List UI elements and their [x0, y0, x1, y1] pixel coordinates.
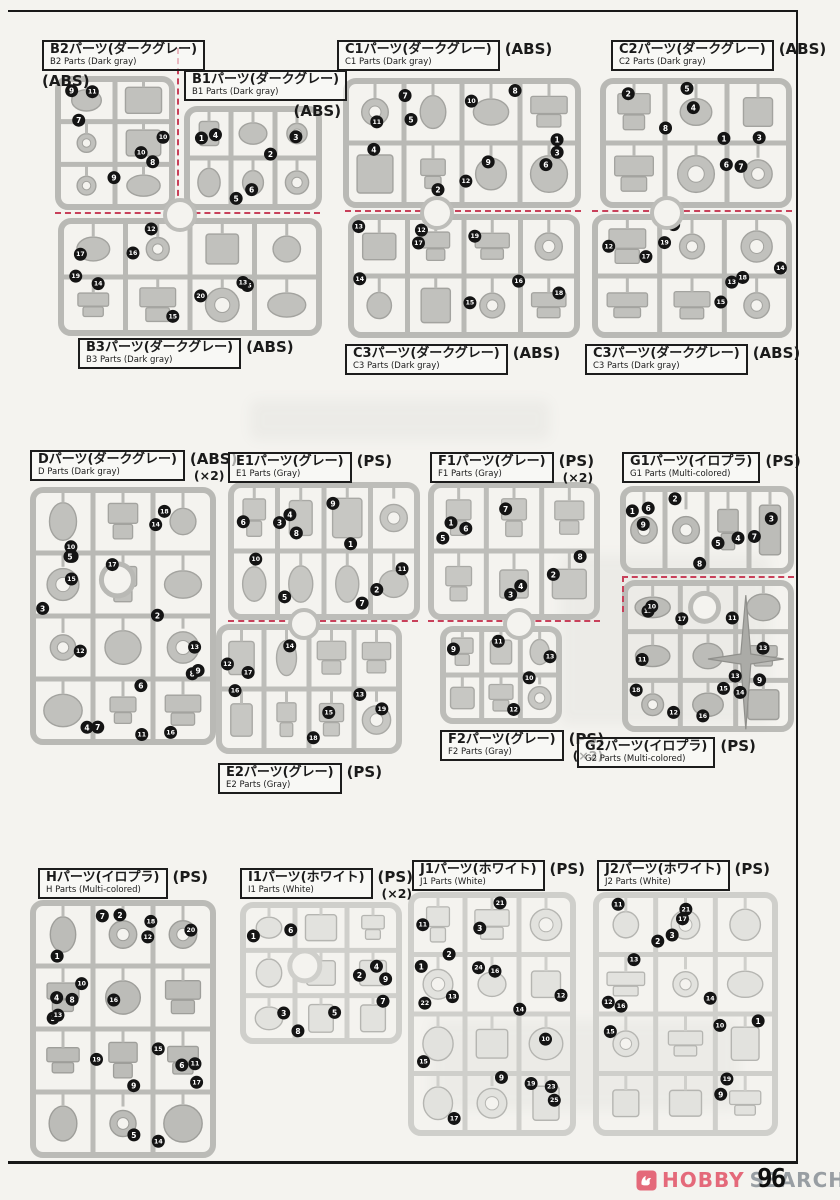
- svg-text:8: 8: [578, 552, 583, 561]
- svg-text:4: 4: [691, 104, 696, 113]
- material-tag: (ABS): [505, 40, 553, 57]
- runner-title-jp: B3パーツ(ダークグレー): [86, 341, 233, 355]
- svg-text:7: 7: [738, 162, 743, 171]
- svg-text:6: 6: [463, 524, 468, 533]
- section-label-e1: E1パーツ(グレー) E1 Parts (Gray) (PS): [228, 452, 392, 483]
- svg-text:4: 4: [518, 582, 523, 591]
- runner-title-en: F2 Parts (Gray): [448, 748, 556, 757]
- runner-title-jp: G2パーツ(イロプラ): [585, 740, 707, 754]
- runner-label-box: F2パーツ(グレー) F2 Parts (Gray): [440, 730, 564, 761]
- svg-text:25: 25: [550, 1097, 559, 1104]
- svg-text:13: 13: [448, 994, 457, 1001]
- page-border-top: [8, 10, 798, 12]
- svg-text:17: 17: [244, 669, 253, 676]
- svg-text:13: 13: [546, 654, 555, 661]
- section-label-j1: J1パーツ(ホワイト) J1 Parts (White) (PS): [412, 860, 585, 891]
- svg-text:13: 13: [239, 280, 248, 287]
- svg-text:17: 17: [642, 254, 651, 261]
- svg-text:7: 7: [503, 505, 508, 514]
- svg-text:10: 10: [467, 98, 476, 105]
- svg-text:9: 9: [718, 1090, 723, 1099]
- svg-text:24: 24: [474, 965, 483, 972]
- svg-text:10: 10: [525, 675, 534, 682]
- section-label-c2: C2パーツ(ダークグレー) C2 Parts (Dark gray) (ABS): [611, 40, 826, 71]
- svg-text:2: 2: [626, 90, 631, 99]
- runner-title-jp: F2パーツ(グレー): [448, 733, 556, 747]
- runner-junction-ring: [420, 196, 454, 230]
- svg-text:13: 13: [759, 645, 768, 652]
- svg-text:2: 2: [374, 586, 379, 595]
- page-border-bottom: [8, 1161, 798, 1164]
- svg-text:6: 6: [249, 186, 254, 195]
- svg-text:16: 16: [699, 713, 708, 720]
- svg-text:12: 12: [509, 706, 518, 713]
- svg-text:18: 18: [160, 508, 169, 515]
- svg-text:17: 17: [450, 1115, 459, 1122]
- hobby-search-logo-icon: [636, 1170, 657, 1191]
- material-tag: (PS): [173, 868, 209, 885]
- runner-title-en: B3 Parts (Dark gray): [86, 356, 233, 365]
- runner-title-en: D Parts (Dark gray): [38, 468, 177, 477]
- svg-text:13: 13: [630, 957, 639, 964]
- runner-title-jp: B2パーツ(ダークグレー): [50, 43, 197, 57]
- runner-diagram-j1: 11141719210312191315212223242516: [408, 892, 576, 1136]
- svg-text:8: 8: [150, 158, 155, 167]
- svg-text:19: 19: [660, 240, 669, 247]
- runner-title-jp: Hパーツ(イロプラ): [46, 871, 160, 885]
- svg-text:6: 6: [646, 504, 651, 513]
- cut-line: [592, 210, 792, 212]
- cut-line: [345, 210, 581, 212]
- svg-text:12: 12: [223, 661, 232, 668]
- scan-artifact: [250, 400, 550, 440]
- svg-text:12: 12: [557, 992, 566, 999]
- runner-title-jp: C3パーツ(ダークグレー): [353, 347, 500, 361]
- svg-text:9: 9: [111, 174, 116, 183]
- svg-text:1: 1: [756, 1017, 761, 1026]
- svg-text:9: 9: [486, 158, 491, 167]
- runner-diagram-b1: 125364: [184, 106, 322, 210]
- runner-label-box: I1パーツ(ホワイト) I1 Parts (White): [240, 868, 373, 899]
- svg-text:10: 10: [159, 134, 168, 141]
- runner-label-box: C1パーツ(ダークグレー) C1 Parts (Dark gray): [337, 40, 500, 71]
- cut-line: [622, 576, 624, 612]
- svg-text:5: 5: [282, 593, 287, 602]
- svg-text:7: 7: [359, 599, 364, 608]
- material-tag: (PS): [550, 860, 586, 877]
- runner-title-jp: B1パーツ(ダークグレー): [192, 73, 339, 87]
- runner-label-box: C3パーツ(ダークグレー) C3 Parts (Dark gray): [345, 344, 508, 375]
- svg-text:4: 4: [287, 511, 292, 520]
- svg-text:5: 5: [131, 1131, 136, 1140]
- runner-title-en: E1 Parts (Gray): [236, 470, 344, 479]
- svg-text:6: 6: [724, 161, 729, 170]
- svg-text:2: 2: [155, 611, 160, 620]
- runner-diagram-i1: 123456789: [240, 902, 402, 1044]
- section-label-j2: J2パーツ(ホワイト) J2 Parts (White) (PS): [597, 860, 770, 891]
- svg-text:6: 6: [241, 518, 246, 527]
- material-tag: (PS): [357, 452, 393, 469]
- svg-text:5: 5: [332, 1008, 337, 1017]
- runner-title-en: B2 Parts (Dark gray): [50, 58, 197, 67]
- runner-label-box: B2パーツ(ダークグレー) B2 Parts (Dark gray): [42, 40, 205, 71]
- svg-text:7: 7: [76, 116, 81, 125]
- svg-text:10: 10: [647, 603, 656, 610]
- svg-text:7: 7: [402, 91, 407, 100]
- runner-label-box: C3パーツ(ダークグレー) C3 Parts (Dark gray): [585, 344, 748, 375]
- section-label-h: Hパーツ(イロプラ) H Parts (Multi-colored) (PS): [38, 868, 208, 899]
- svg-text:1: 1: [199, 134, 204, 143]
- svg-text:7: 7: [752, 532, 757, 541]
- svg-text:14: 14: [706, 995, 715, 1002]
- svg-text:2: 2: [268, 150, 273, 159]
- runner-diagram-c3-mid: 1316121415171819: [348, 214, 580, 338]
- svg-text:9: 9: [195, 666, 200, 675]
- svg-text:3: 3: [293, 133, 298, 142]
- svg-text:7: 7: [95, 723, 100, 732]
- instruction-manual-page: B2パーツ(ダークグレー) B2 Parts (Dark gray) (ABS)…: [0, 0, 840, 1200]
- section-label-c3-right: C3パーツ(ダークグレー) C3 Parts (Dark gray) (ABS): [585, 344, 800, 375]
- runner-diagram-e2: 1213141615171918: [216, 624, 402, 754]
- svg-text:23: 23: [547, 1084, 556, 1091]
- svg-text:17: 17: [192, 1079, 201, 1086]
- svg-text:10: 10: [67, 544, 76, 551]
- material-tag: (ABS): [779, 40, 827, 57]
- svg-text:16: 16: [514, 278, 523, 285]
- runner-label-box: G1パーツ(イロプラ) G1 Parts (Multi-colored): [622, 452, 760, 483]
- page-border-right: [796, 10, 798, 1163]
- svg-text:14: 14: [151, 522, 160, 529]
- svg-text:16: 16: [109, 997, 118, 1004]
- svg-text:17: 17: [76, 251, 85, 258]
- svg-text:11: 11: [614, 901, 623, 908]
- svg-text:12: 12: [147, 226, 156, 233]
- runner-diagram-g1: 142356789: [620, 486, 794, 574]
- svg-text:11: 11: [372, 119, 381, 126]
- runner-label-box: B3パーツ(ダークグレー) B3 Parts (Dark gray): [78, 338, 241, 369]
- svg-text:18: 18: [632, 687, 641, 694]
- svg-text:6: 6: [288, 926, 293, 935]
- runner-title-jp: Dパーツ(ダークグレー): [38, 453, 177, 467]
- runner-label-box: F1パーツ(グレー) F1 Parts (Gray): [430, 452, 554, 483]
- runner-label-box: B1パーツ(ダークグレー) B1 Parts (Dark gray): [184, 70, 347, 101]
- material-tag: (PS): [735, 860, 771, 877]
- svg-text:12: 12: [604, 999, 613, 1006]
- svg-text:12: 12: [76, 648, 85, 655]
- svg-text:20: 20: [187, 927, 196, 934]
- svg-text:16: 16: [491, 968, 500, 975]
- svg-text:4: 4: [54, 994, 59, 1003]
- svg-text:8: 8: [295, 1027, 300, 1036]
- svg-text:5: 5: [408, 116, 413, 125]
- svg-text:2: 2: [655, 937, 660, 946]
- runner-title-jp: E2パーツ(グレー): [226, 766, 334, 780]
- svg-text:2: 2: [672, 495, 677, 504]
- svg-text:14: 14: [285, 643, 294, 650]
- svg-text:8: 8: [697, 559, 702, 568]
- svg-text:3: 3: [670, 931, 675, 940]
- material-tag: (PS): [347, 763, 383, 780]
- runner-title-en: C3 Parts (Dark gray): [593, 362, 740, 371]
- svg-text:1: 1: [348, 540, 353, 549]
- svg-text:4: 4: [735, 534, 740, 543]
- svg-text:17: 17: [678, 916, 687, 923]
- runner-title-en: C1 Parts (Dark gray): [345, 58, 492, 67]
- svg-text:15: 15: [606, 1029, 615, 1036]
- section-label-c3-mid: C3パーツ(ダークグレー) C3 Parts (Dark gray) (ABS): [345, 344, 560, 375]
- svg-text:9: 9: [757, 676, 762, 685]
- section-label-g2: G2パーツ(イロプラ) G2 Parts (Multi-colored) (PS…: [577, 737, 756, 768]
- section-label-g1: G1パーツ(イロプラ) G1 Parts (Multi-colored) (PS…: [622, 452, 801, 483]
- svg-text:14: 14: [355, 276, 364, 283]
- svg-text:13: 13: [54, 1012, 63, 1019]
- runner-label-box: E1パーツ(グレー) E1 Parts (Gray): [228, 452, 352, 483]
- material-tag: (PS): [378, 868, 414, 885]
- multiplier-tag: (×2): [378, 885, 414, 901]
- svg-text:11: 11: [398, 566, 407, 573]
- runner-diagram-d: 124365871516109111218171314: [30, 487, 216, 745]
- runner-diagram-b3: 171512192016131514: [58, 218, 322, 336]
- svg-text:15: 15: [168, 313, 177, 320]
- section-label-f1: F1パーツ(グレー) F1 Parts (Gray) (PS) (×2): [430, 452, 594, 485]
- material-tag: (ABS): [513, 344, 561, 361]
- svg-text:12: 12: [462, 178, 471, 185]
- svg-text:10: 10: [716, 1022, 725, 1029]
- svg-text:15: 15: [719, 685, 728, 692]
- logo-text-hobby: HOBBY: [662, 1168, 745, 1192]
- svg-text:11: 11: [728, 615, 737, 622]
- runner-diagram-g2: 1213121314109161115171811: [622, 580, 794, 732]
- svg-text:13: 13: [354, 224, 363, 231]
- svg-text:16: 16: [617, 1003, 626, 1010]
- svg-text:15: 15: [324, 710, 333, 717]
- svg-text:2: 2: [551, 570, 556, 579]
- runner-label-box: J1パーツ(ホワイト) J1 Parts (White): [412, 860, 545, 891]
- runner-diagram-c3-right: 1213161415171819: [592, 214, 792, 338]
- svg-text:4: 4: [371, 145, 376, 154]
- runner-title-en: G2 Parts (Multi-colored): [585, 755, 707, 764]
- svg-text:15: 15: [419, 1059, 428, 1066]
- section-label-e2: E2パーツ(グレー) E2 Parts (Gray) (PS): [218, 763, 382, 794]
- svg-text:1: 1: [448, 519, 453, 528]
- svg-text:14: 14: [736, 689, 745, 696]
- runner-title-en: F1 Parts (Gray): [438, 470, 546, 479]
- page-number: 96: [757, 1164, 784, 1194]
- runner-title-jp: F1パーツ(グレー): [438, 455, 546, 469]
- svg-text:8: 8: [69, 995, 74, 1004]
- svg-text:5: 5: [67, 552, 72, 561]
- svg-text:9: 9: [499, 1073, 504, 1082]
- material-tag: (ABS): [246, 338, 294, 355]
- svg-text:10: 10: [251, 556, 260, 563]
- svg-text:3: 3: [508, 590, 513, 599]
- svg-text:9: 9: [383, 975, 388, 984]
- svg-text:19: 19: [527, 1081, 536, 1088]
- svg-text:10: 10: [541, 1036, 550, 1043]
- svg-text:4: 4: [84, 723, 89, 732]
- svg-text:3: 3: [477, 924, 482, 933]
- runner-junction-ring: [503, 608, 535, 640]
- runner-diagram-f2: 910111312: [440, 626, 562, 724]
- svg-text:17: 17: [414, 240, 423, 247]
- svg-text:14: 14: [154, 1138, 163, 1145]
- svg-text:13: 13: [731, 673, 740, 680]
- svg-text:21: 21: [682, 906, 691, 913]
- svg-text:8: 8: [512, 87, 517, 96]
- section-label-b1: B1パーツ(ダークグレー) B1 Parts (Dark gray) (ABS): [184, 70, 347, 119]
- svg-text:19: 19: [378, 706, 387, 713]
- svg-text:8: 8: [663, 124, 668, 133]
- cut-line: [228, 620, 418, 622]
- runner-title-en: B1 Parts (Dark gray): [192, 88, 339, 97]
- svg-text:9: 9: [131, 1082, 136, 1091]
- svg-text:4: 4: [374, 962, 379, 971]
- svg-text:13: 13: [727, 279, 736, 286]
- svg-text:11: 11: [191, 1061, 200, 1068]
- svg-text:7: 7: [380, 997, 385, 1006]
- svg-text:5: 5: [715, 539, 720, 548]
- runner-title-jp: E1パーツ(グレー): [236, 455, 344, 469]
- svg-text:15: 15: [67, 576, 76, 583]
- runner-label-box: C2パーツ(ダークグレー) C2 Parts (Dark gray): [611, 40, 774, 71]
- material-tag: (ABS): [42, 72, 90, 89]
- svg-text:3: 3: [281, 1009, 286, 1018]
- runner-title-jp: C3パーツ(ダークグレー): [593, 347, 740, 361]
- svg-text:7: 7: [100, 912, 105, 921]
- svg-text:11: 11: [638, 656, 647, 663]
- svg-text:4: 4: [213, 131, 218, 140]
- section-label-i1: I1パーツ(ホワイト) I1 Parts (White) (PS) (×2): [240, 868, 413, 901]
- runner-title-jp: C1パーツ(ダークグレー): [345, 43, 492, 57]
- svg-text:14: 14: [776, 265, 785, 272]
- svg-text:3: 3: [40, 604, 45, 613]
- svg-text:9: 9: [451, 645, 456, 654]
- svg-text:15: 15: [466, 300, 475, 307]
- svg-text:12: 12: [669, 709, 678, 716]
- runner-diagram-f1: 12354687: [428, 482, 600, 620]
- runner-label-box: E2パーツ(グレー) E2 Parts (Gray): [218, 763, 342, 794]
- runner-title-en: J2 Parts (White): [605, 878, 722, 887]
- svg-text:16: 16: [231, 688, 240, 695]
- svg-text:15: 15: [154, 1046, 163, 1053]
- hobby-search-logo: HOBBY SEARCH: [636, 1168, 840, 1192]
- runner-title-en: C2 Parts (Dark gray): [619, 58, 766, 67]
- runner-junction-ring: [163, 198, 197, 232]
- runner-diagram-c1: 792112113104856: [343, 78, 581, 208]
- svg-text:3: 3: [769, 514, 774, 523]
- svg-text:12: 12: [604, 243, 613, 250]
- runner-label-box: Dパーツ(ダークグレー) D Parts (Dark gray): [30, 450, 185, 481]
- svg-text:18: 18: [555, 290, 564, 297]
- svg-text:5: 5: [684, 84, 689, 93]
- svg-text:1: 1: [419, 962, 424, 971]
- section-label-b2: B2パーツ(ダークグレー) B2 Parts (Dark gray) (ABS): [42, 40, 205, 89]
- runner-title-en: H Parts (Multi-colored): [46, 886, 160, 895]
- material-tag: (PS): [720, 737, 756, 754]
- svg-text:9: 9: [330, 499, 335, 508]
- section-label-d: Dパーツ(ダークグレー) D Parts (Dark gray) (ABS) (…: [30, 450, 237, 483]
- material-tag: (ABS): [294, 102, 342, 119]
- svg-text:19: 19: [723, 1076, 732, 1083]
- runner-title-jp: J1パーツ(ホワイト): [420, 863, 537, 877]
- cut-line: [622, 576, 794, 578]
- svg-text:16: 16: [166, 729, 175, 736]
- svg-text:8: 8: [294, 529, 299, 538]
- svg-text:2: 2: [446, 950, 451, 959]
- svg-text:18: 18: [309, 735, 318, 742]
- svg-text:3: 3: [555, 148, 560, 157]
- material-tag: (PS): [765, 452, 801, 469]
- material-tag: (PS): [559, 452, 595, 469]
- svg-text:13: 13: [190, 644, 199, 651]
- svg-text:19: 19: [71, 273, 80, 280]
- svg-text:6: 6: [543, 161, 548, 170]
- svg-text:12: 12: [143, 934, 152, 941]
- svg-text:3: 3: [277, 519, 282, 528]
- svg-text:20: 20: [196, 293, 205, 300]
- svg-text:14: 14: [94, 281, 103, 288]
- svg-text:18: 18: [738, 274, 747, 281]
- multiplier-tag: (×2): [559, 469, 595, 485]
- runner-title-en: E2 Parts (Gray): [226, 781, 334, 790]
- section-label-c1: C1パーツ(ダークグレー) C1 Parts (Dark gray) (ABS): [337, 40, 552, 71]
- runner-diagram-h: 1152354678910111213141617181920: [30, 900, 216, 1158]
- runner-diagram-c2: 21536874: [600, 78, 792, 208]
- svg-text:11: 11: [494, 638, 503, 645]
- svg-text:3: 3: [757, 134, 762, 143]
- runner-diagram-j2: 111417192103121913152116: [593, 892, 778, 1136]
- svg-text:2: 2: [435, 186, 440, 195]
- svg-text:17: 17: [677, 616, 686, 623]
- runner-title-en: C3 Parts (Dark gray): [353, 362, 500, 371]
- svg-text:11: 11: [137, 732, 146, 739]
- svg-text:19: 19: [470, 233, 479, 240]
- runner-title-en: I1 Parts (White): [248, 886, 365, 895]
- runner-title-en: J1 Parts (White): [420, 878, 537, 887]
- svg-text:22: 22: [421, 1000, 430, 1007]
- svg-text:2: 2: [357, 971, 362, 980]
- svg-text:1: 1: [554, 136, 559, 145]
- svg-text:11: 11: [418, 922, 427, 929]
- svg-text:15: 15: [717, 299, 726, 306]
- svg-text:1: 1: [630, 507, 635, 516]
- svg-text:12: 12: [417, 227, 426, 234]
- svg-text:16: 16: [129, 250, 138, 257]
- svg-text:13: 13: [355, 691, 364, 698]
- runner-diagram-e1: 3156781191024: [228, 482, 420, 620]
- svg-text:2: 2: [117, 911, 122, 920]
- runner-junction-ring: [650, 196, 684, 230]
- svg-text:10: 10: [77, 981, 86, 988]
- svg-text:17: 17: [108, 562, 117, 569]
- runner-title-jp: C2パーツ(ダークグレー): [619, 43, 766, 57]
- runner-title-jp: G1パーツ(イロプラ): [630, 455, 752, 469]
- runner-title-jp: J2パーツ(ホワイト): [605, 863, 722, 877]
- runner-label-box: Hパーツ(イロプラ) H Parts (Multi-colored): [38, 868, 168, 899]
- svg-text:1: 1: [721, 134, 726, 143]
- runner-label-box: G2パーツ(イロプラ) G2 Parts (Multi-colored): [577, 737, 715, 768]
- runner-diagram-b2: 9101110978: [55, 76, 175, 210]
- svg-text:18: 18: [147, 918, 156, 925]
- svg-text:6: 6: [138, 682, 143, 691]
- section-label-b3: B3パーツ(ダークグレー) B3 Parts (Dark gray) (ABS): [78, 338, 294, 369]
- svg-text:19: 19: [92, 1056, 101, 1063]
- material-tag: (ABS): [753, 344, 801, 361]
- runner-title-jp: I1パーツ(ホワイト): [248, 871, 365, 885]
- svg-text:10: 10: [137, 150, 146, 157]
- runner-junction-ring: [288, 608, 320, 640]
- svg-text:9: 9: [641, 520, 646, 529]
